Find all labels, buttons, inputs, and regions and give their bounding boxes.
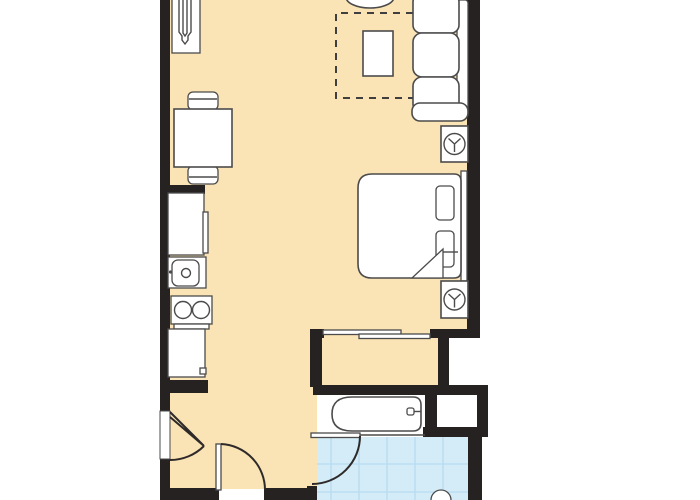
sliding-closet-door-2 <box>359 334 430 339</box>
cabinet-handle <box>200 368 206 374</box>
bathroom-left-corner-wall <box>307 486 317 500</box>
headboard <box>461 171 467 281</box>
stove-drawer <box>174 324 209 329</box>
coffee-table <box>363 31 393 76</box>
closet-floor <box>322 338 438 385</box>
bathroom-door-leaf <box>311 433 360 438</box>
lamp-end-table-2 <box>441 281 468 318</box>
sofa-cushion-1 <box>413 0 459 33</box>
sofa-armrest <box>412 103 468 121</box>
storage-closet-bottom-wall <box>423 427 488 437</box>
interior-door-leaf <box>216 444 221 490</box>
refrigerator-handle <box>203 212 208 253</box>
sofa-cushion-2 <box>413 33 459 77</box>
kitchen-stub-wall-bottom <box>160 380 208 393</box>
floor-plan <box>0 0 700 500</box>
kitchen-sink-basin <box>172 260 199 286</box>
closet-bottom-wall <box>313 385 488 395</box>
refrigerator <box>168 193 204 255</box>
ironing-board-cabinet <box>172 0 200 53</box>
closet-left-wall <box>310 329 322 387</box>
bathroom-right-wall <box>468 437 482 500</box>
right-wall <box>467 0 480 338</box>
dining-chair-bottom <box>188 166 218 184</box>
right-step-wall <box>438 338 449 388</box>
bedroom-south-wall-right <box>430 329 480 338</box>
lamp-end-table-1 <box>441 126 468 162</box>
dining-chair-top <box>188 92 218 110</box>
entry-door-opening <box>160 411 170 459</box>
sink-faucet-dot <box>169 270 172 273</box>
tub-faucet <box>407 408 414 415</box>
kitchenette <box>168 193 212 377</box>
bottom-wall-left <box>160 488 219 500</box>
dining-table <box>174 109 232 167</box>
floor-plan-canvas <box>0 0 700 500</box>
pillow-1 <box>436 186 454 220</box>
